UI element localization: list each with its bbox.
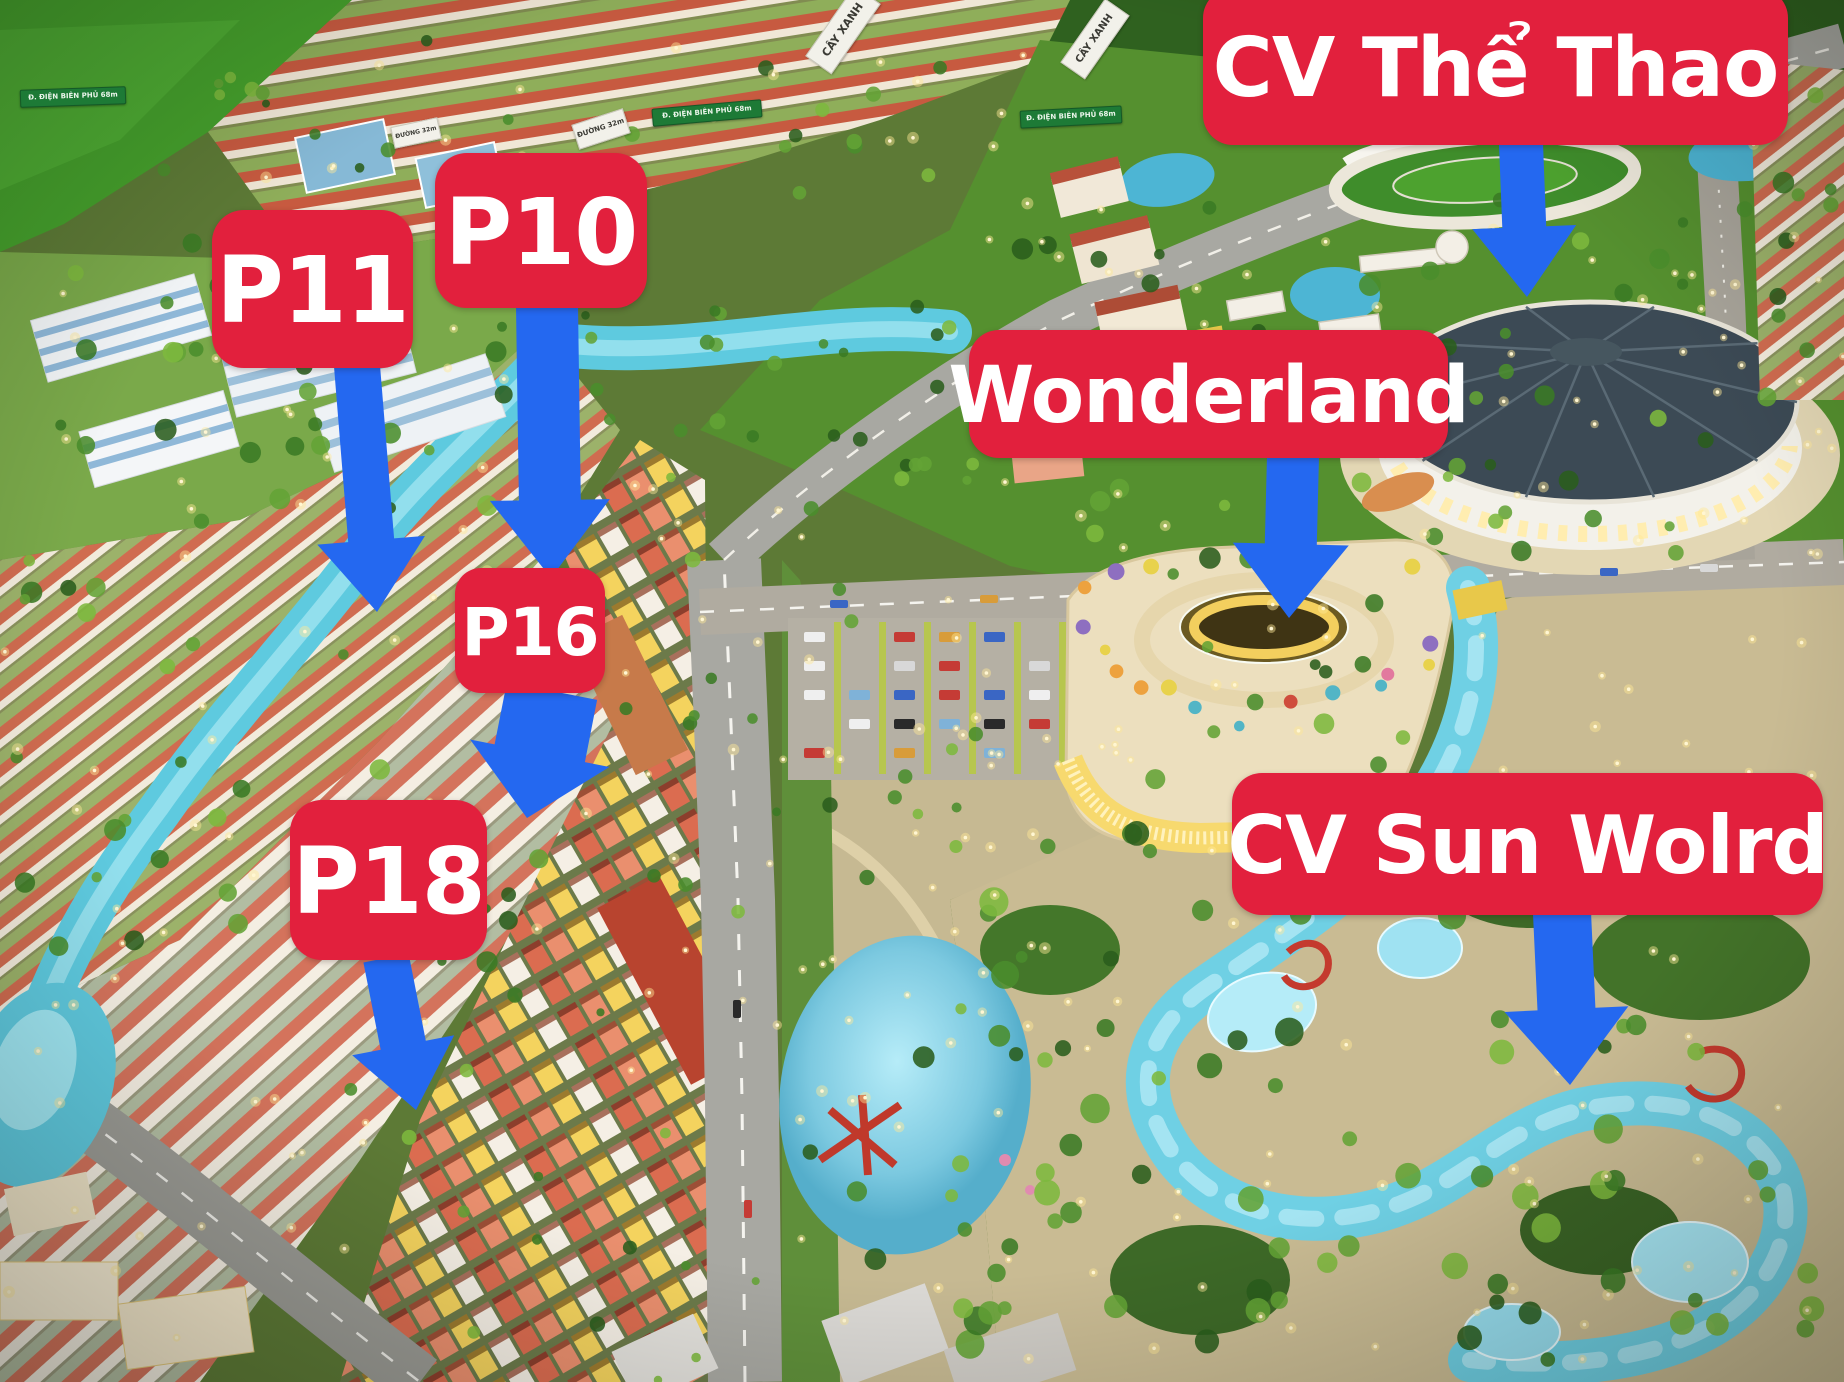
map-label-cv-the-thao: CV Thể Thao [1203,0,1788,145]
scale-model-photo: CÂY XANHCÂY XANHĐ. ĐIỆN BIÊN PHỦ 68mĐ. Đ… [0,0,1844,1382]
map-label-p18: P18 [290,800,487,960]
map-label-wonderland: Wonderland [969,330,1448,458]
annotation-labels: P11P10P16P18WonderlandCV Thể ThaoCV Sun … [0,0,1844,1382]
map-label-text: P11 [216,245,408,337]
map-label-p16: P16 [455,568,605,693]
map-label-p10: P10 [435,153,647,308]
map-label-cv-sun-wolrd: CV Sun Wolrd [1232,773,1823,915]
map-label-text: P10 [445,187,637,279]
map-label-text: P16 [461,600,598,666]
map-label-text: P18 [292,836,484,928]
map-label-p11: P11 [212,210,413,368]
map-label-text: Wonderland [948,357,1468,435]
map-label-text: CV Sun Wolrd [1227,806,1827,886]
map-label-text: CV Thể Thao [1213,28,1779,110]
